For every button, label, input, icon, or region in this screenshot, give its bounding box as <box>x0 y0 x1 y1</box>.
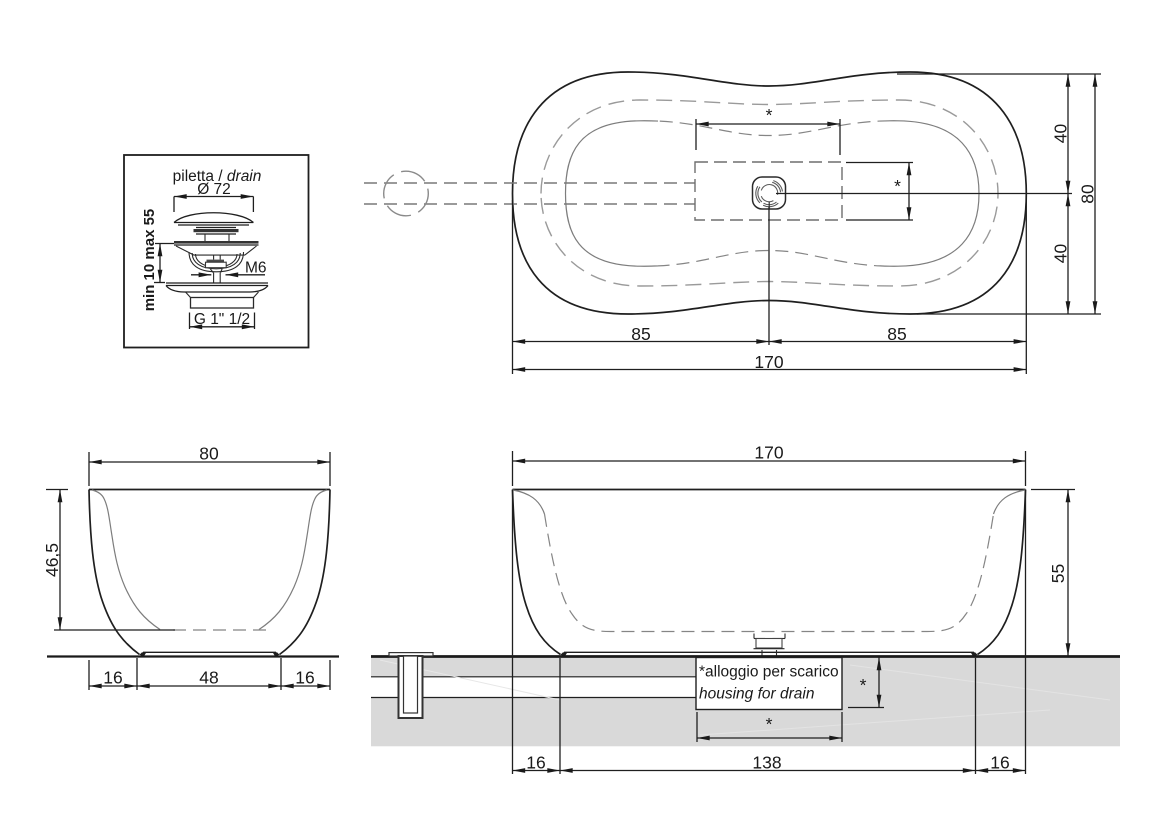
svg-text:16: 16 <box>526 753 545 773</box>
svg-text:40: 40 <box>1051 244 1071 264</box>
svg-text:170: 170 <box>754 443 783 463</box>
svg-text:Ø 72: Ø 72 <box>197 181 231 198</box>
svg-text:M6: M6 <box>245 260 267 277</box>
svg-text:*: * <box>766 714 773 734</box>
svg-text:min 10 max 55: min 10 max 55 <box>141 209 158 312</box>
svg-text:46,5: 46,5 <box>42 543 62 577</box>
svg-text:*alloggio per scarico: *alloggio per scarico <box>699 664 839 681</box>
svg-text:80: 80 <box>199 444 219 464</box>
svg-text:48: 48 <box>199 668 218 688</box>
svg-text:16: 16 <box>990 753 1009 773</box>
svg-text:*: * <box>860 675 867 695</box>
svg-text:G 1" 1/2: G 1" 1/2 <box>194 311 250 328</box>
svg-text:85: 85 <box>887 324 906 344</box>
svg-text:55: 55 <box>1048 564 1068 583</box>
svg-text:138: 138 <box>752 753 781 773</box>
svg-text:40: 40 <box>1051 124 1071 144</box>
svg-text:housing for drain: housing for drain <box>699 686 814 703</box>
svg-text:*: * <box>894 176 901 196</box>
svg-text:*: * <box>766 105 773 125</box>
svg-text:170: 170 <box>754 352 783 372</box>
svg-text:16: 16 <box>103 668 122 688</box>
svg-text:85: 85 <box>631 324 650 344</box>
svg-text:16: 16 <box>295 668 314 688</box>
svg-text:80: 80 <box>1078 184 1098 204</box>
